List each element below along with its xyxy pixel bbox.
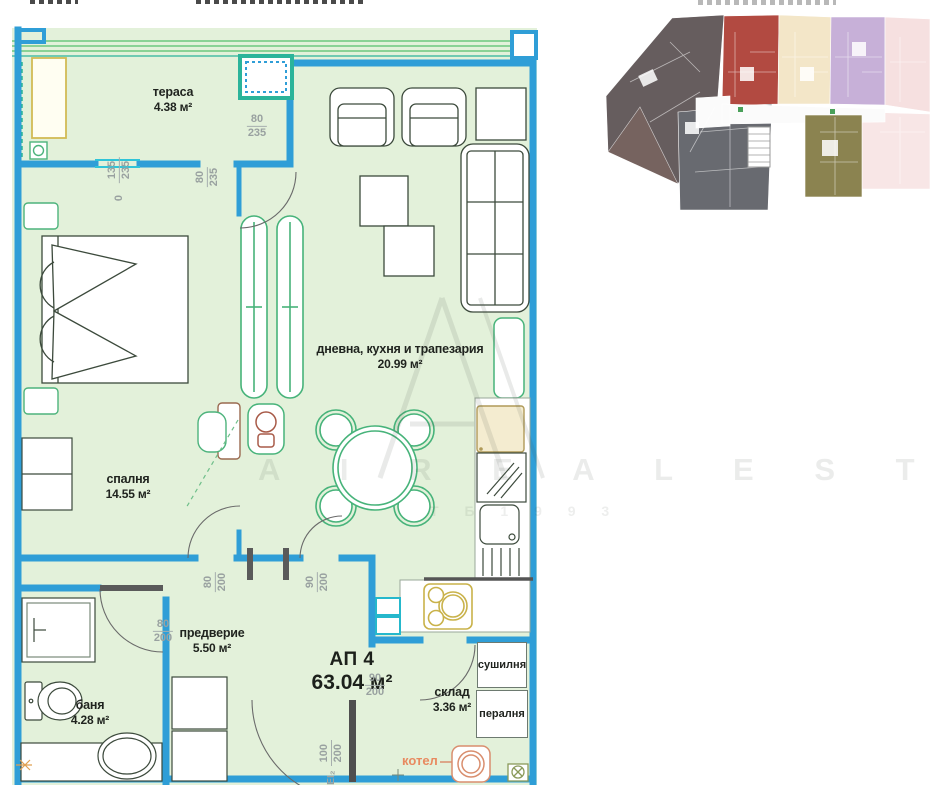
terrace-name: тераса	[153, 85, 194, 99]
dim-num: 80	[194, 167, 208, 187]
bath-door-leaf	[100, 585, 163, 591]
dim-num: 90	[365, 672, 385, 686]
dim-num: 100	[318, 740, 332, 766]
living-area: 20.99 м²	[317, 357, 484, 373]
washer-box: пералня	[476, 690, 528, 738]
key-apartment-red	[722, 15, 779, 106]
bath-label: баня 4.28 м²	[71, 697, 109, 729]
dim-entrance-door: ЕІ₂ 100 200	[318, 740, 344, 785]
armchair-1-icon	[330, 88, 394, 146]
cooktop-icon	[424, 584, 472, 629]
watermark-subtext: Т Б 1 9 9 3	[430, 503, 620, 519]
apartment-number: АП 4	[312, 649, 393, 671]
key-apartment-pink-top	[885, 17, 930, 112]
corridor-chair-icon	[248, 404, 284, 454]
entrance-door-spec: ЕІ₂	[325, 770, 337, 785]
dresser-icon	[22, 438, 72, 510]
storage-area: 3.36 м²	[433, 700, 471, 716]
key-apartment-purple	[830, 17, 885, 105]
boiler-label: котел	[402, 753, 438, 768]
bedroom-name: спалня	[106, 472, 149, 486]
drain-icon	[508, 764, 528, 781]
boiler-text: котел	[402, 753, 438, 768]
dim-num: 90	[304, 572, 318, 592]
watermark-sub: Т Б 1 9 9 3	[430, 503, 620, 519]
watermark-text: A I R E A L E S T A T E	[258, 452, 941, 488]
dim-terrace-door: 80 235	[247, 113, 267, 139]
key-apartment-cream	[778, 15, 831, 104]
kitchen-cabinet-icon	[376, 598, 400, 634]
armchair-2-icon	[402, 88, 466, 146]
dryer-label: сушилня	[478, 659, 526, 671]
hall-label: предверие 5.50 м²	[179, 625, 244, 657]
dim-living-door: 90 200	[304, 572, 330, 592]
entry-closet-icon	[172, 677, 227, 781]
dim-den: 235	[208, 168, 221, 186]
cut-off-title-right	[698, 0, 836, 5]
dim-zero: 0	[113, 195, 125, 201]
dim-den: 200	[332, 744, 345, 762]
sofa-icon	[461, 144, 529, 312]
dim-den: 235	[120, 161, 133, 179]
dim-bath-door: 80 200	[153, 618, 173, 644]
dim-den: 200	[216, 573, 229, 591]
dim-bedroom-door: 80 200	[202, 572, 228, 592]
dim-num: 80	[247, 113, 267, 127]
dim-den: 200	[154, 632, 172, 645]
dim-terrace-window: 135 235	[106, 157, 132, 183]
hall-area: 5.50 м²	[179, 641, 244, 657]
bath-area: 4.28 м²	[71, 713, 109, 729]
storage-label: склад 3.36 м²	[433, 684, 471, 716]
watermark-letters: A I R E A L E S T A T E	[258, 452, 941, 487]
bed-icon	[40, 236, 188, 383]
side-table-icon	[476, 88, 526, 140]
dryer-box: сушилня	[477, 642, 527, 688]
bedroom-area: 14.55 м²	[106, 487, 151, 503]
dim-terrace-window-zero: 0	[113, 195, 125, 201]
dim-den: 235	[248, 127, 266, 140]
terrace-area: 4.38 м²	[153, 100, 194, 116]
floor-plan-page: тераса 4.38 м² спалня 14.55 м² дневна, к…	[0, 0, 941, 785]
bedroom-label: спалня 14.55 м²	[106, 471, 151, 503]
dim-num: 135	[106, 157, 120, 183]
living-name: дневна, кухня и трапезария	[317, 342, 484, 356]
terrace-label: тераса 4.38 м²	[153, 84, 194, 116]
entrance-door-leaf	[349, 700, 356, 782]
dim-storage-door: 90 200	[365, 672, 385, 698]
dim-terrace-bedroom-door: 80 235	[194, 167, 220, 187]
hall-name: предверие	[179, 626, 244, 640]
dim-den: 200	[318, 573, 331, 591]
dim-num: 80	[202, 572, 216, 592]
living-label: дневна, кухня и трапезария 20.99 м²	[317, 341, 484, 373]
shower-icon	[22, 598, 95, 662]
dim-num: 80	[153, 618, 173, 632]
dim-den: 200	[366, 686, 384, 699]
building-key-plan	[600, 12, 935, 212]
washer-label: пералня	[479, 708, 525, 720]
key-apartment-pink-right	[862, 112, 930, 189]
storage-name: склад	[434, 685, 469, 699]
bath-name: баня	[76, 698, 105, 712]
main-floor-plan	[0, 0, 545, 785]
